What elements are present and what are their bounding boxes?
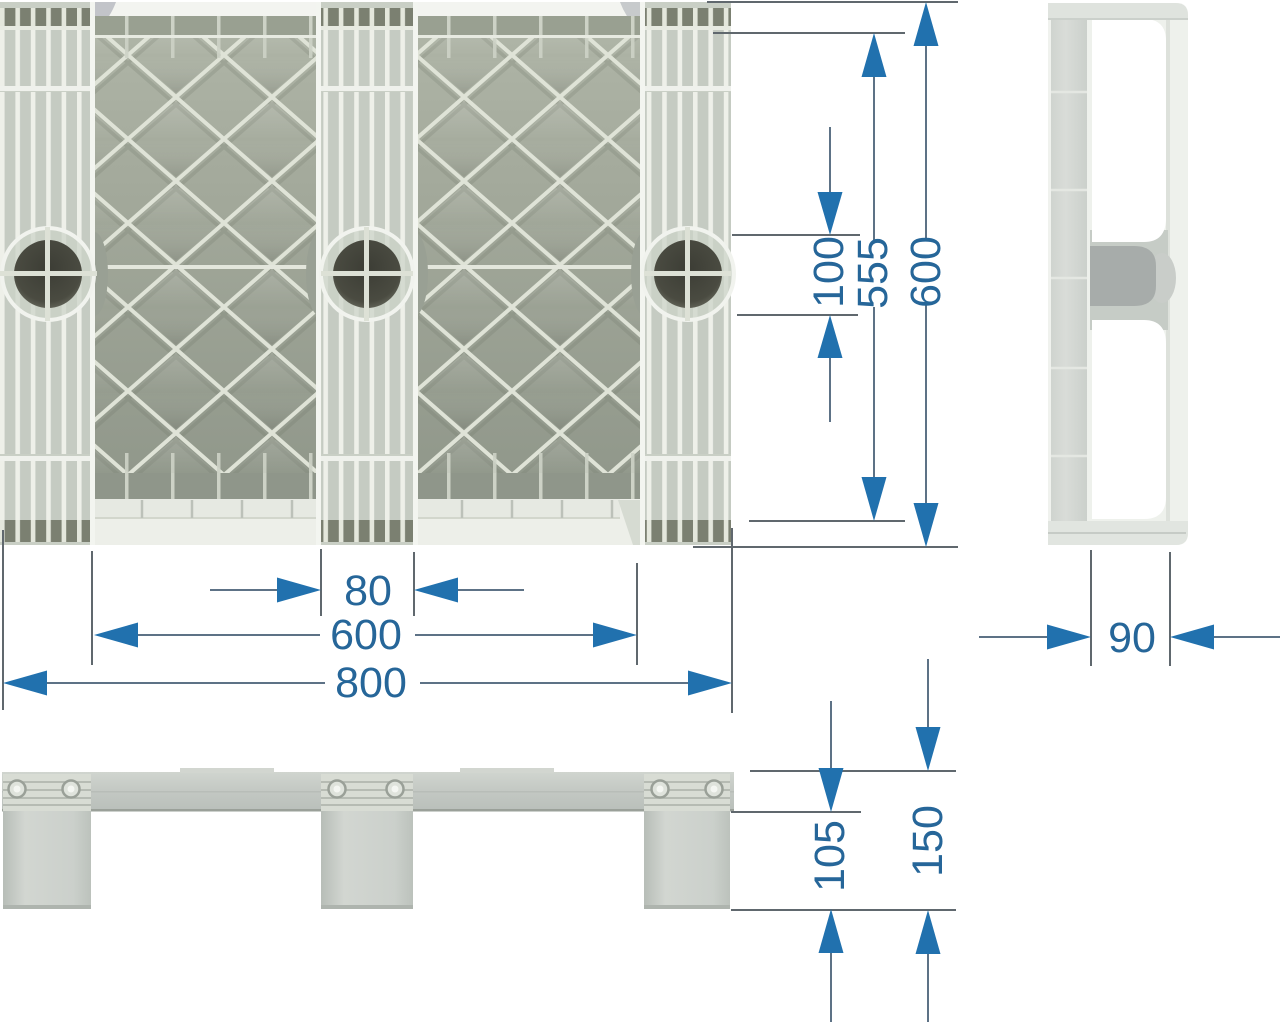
svg-text:80: 80 bbox=[344, 567, 392, 615]
svg-text:555: 555 bbox=[849, 237, 897, 309]
svg-text:100: 100 bbox=[805, 236, 853, 308]
svg-text:600: 600 bbox=[330, 611, 402, 659]
svg-text:600: 600 bbox=[902, 236, 950, 308]
svg-text:800: 800 bbox=[335, 659, 407, 707]
svg-text:105: 105 bbox=[806, 820, 854, 892]
svg-text:90: 90 bbox=[1108, 614, 1156, 662]
svg-text:150: 150 bbox=[904, 805, 952, 877]
